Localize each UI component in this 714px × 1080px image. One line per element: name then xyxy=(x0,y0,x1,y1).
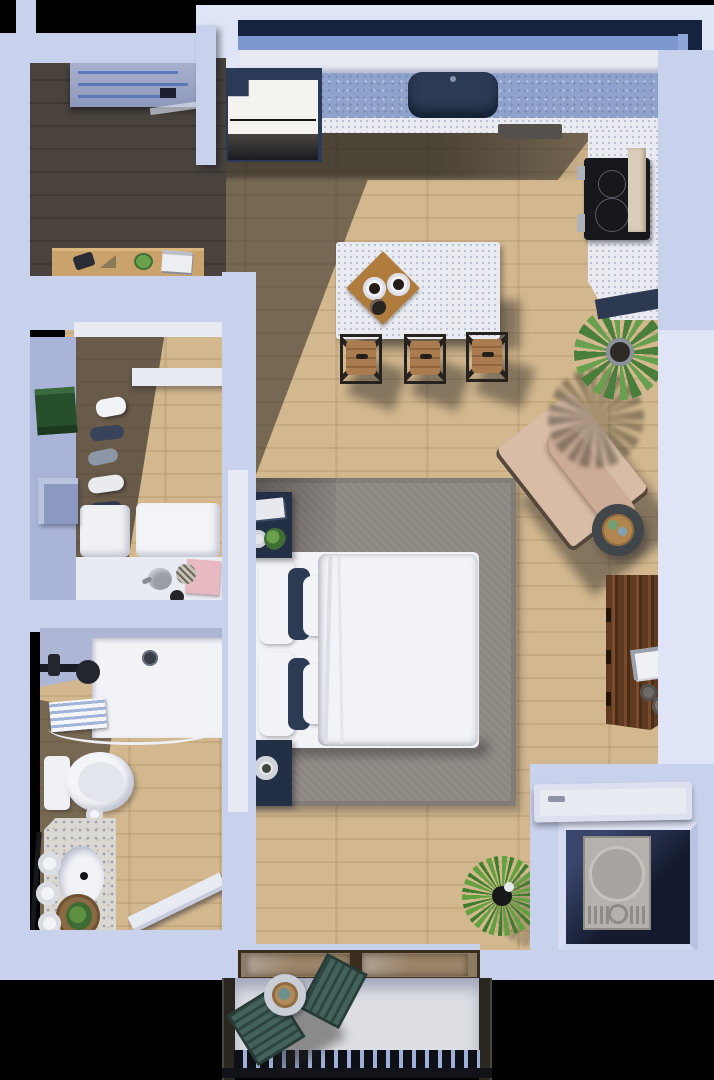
cooktop-burner xyxy=(598,170,626,198)
desk-notebook xyxy=(161,250,192,273)
dresser-drawer-notch xyxy=(606,608,611,622)
closet-alcove xyxy=(30,337,76,603)
storage-box-blue xyxy=(38,478,78,524)
washer-knob xyxy=(608,904,628,924)
dresser-drawer-notch xyxy=(606,650,611,664)
bar-stool-handle xyxy=(356,354,368,359)
wall-bottom-right xyxy=(474,950,714,980)
island-plate-food xyxy=(393,279,404,290)
range-hood-panel xyxy=(628,148,646,232)
plant-pot xyxy=(606,338,634,366)
vanity-faucet xyxy=(80,872,88,880)
cooktop-burner xyxy=(595,198,629,232)
island-plate-food xyxy=(369,283,380,294)
rolled-towel xyxy=(38,852,61,875)
washer-controls xyxy=(588,906,610,924)
wall-entry-kitchen xyxy=(196,25,216,165)
closet-door-white xyxy=(228,470,248,812)
nightstand-cup xyxy=(262,764,271,773)
window-glass xyxy=(230,36,700,50)
nightstand-plant xyxy=(264,528,286,550)
sink-faucet xyxy=(450,76,456,82)
bar-stool-handle xyxy=(420,354,432,359)
pot-rail xyxy=(577,214,585,232)
island-cup xyxy=(370,299,386,315)
wall-bottom-left xyxy=(0,930,244,980)
front-door-groove xyxy=(78,71,178,74)
laundry-door-handle xyxy=(548,796,565,802)
balcony-railing-bar xyxy=(222,1068,492,1078)
bar-stool-handle xyxy=(482,352,494,357)
tea-tray-bowl xyxy=(176,564,196,584)
window-frame xyxy=(226,20,704,36)
washer-drum xyxy=(589,846,645,902)
shower-valve xyxy=(48,654,60,676)
front-door-handle xyxy=(160,88,176,98)
closet-shelf xyxy=(132,368,228,386)
side-table-items xyxy=(608,520,618,530)
shower-drain xyxy=(142,650,158,666)
storage-boxes xyxy=(80,505,130,557)
closet-top-edge xyxy=(74,322,228,337)
plant-pot-rim xyxy=(504,882,514,892)
desk-triangle-ruler xyxy=(100,255,116,268)
wall-left-outer xyxy=(0,33,30,978)
side-table-items xyxy=(618,527,627,536)
green-towel xyxy=(34,387,77,436)
desk-plant xyxy=(134,253,153,270)
shower-curtain xyxy=(48,712,220,745)
cutting-board xyxy=(498,124,562,139)
balcony-rail-right xyxy=(479,978,492,1080)
laundry-door xyxy=(534,782,693,823)
fridge-shadow xyxy=(228,134,318,160)
front-door-groove xyxy=(78,83,188,86)
fridge-door-line xyxy=(230,119,316,121)
vanity-tray-plant xyxy=(66,902,92,930)
rolled-towel xyxy=(36,882,59,905)
sliding-door-glass xyxy=(362,954,468,976)
washer-controls xyxy=(630,906,648,924)
floor-plan xyxy=(0,0,714,1080)
toilet-seat xyxy=(78,762,124,802)
storage-boxes xyxy=(136,503,220,557)
pot-rail xyxy=(577,166,585,180)
shower-head xyxy=(76,660,100,684)
front-door-groove xyxy=(78,95,160,98)
wall-right-face xyxy=(658,330,714,770)
balcony-table-items xyxy=(278,988,290,1000)
dresser-drawer-notch xyxy=(606,692,611,706)
